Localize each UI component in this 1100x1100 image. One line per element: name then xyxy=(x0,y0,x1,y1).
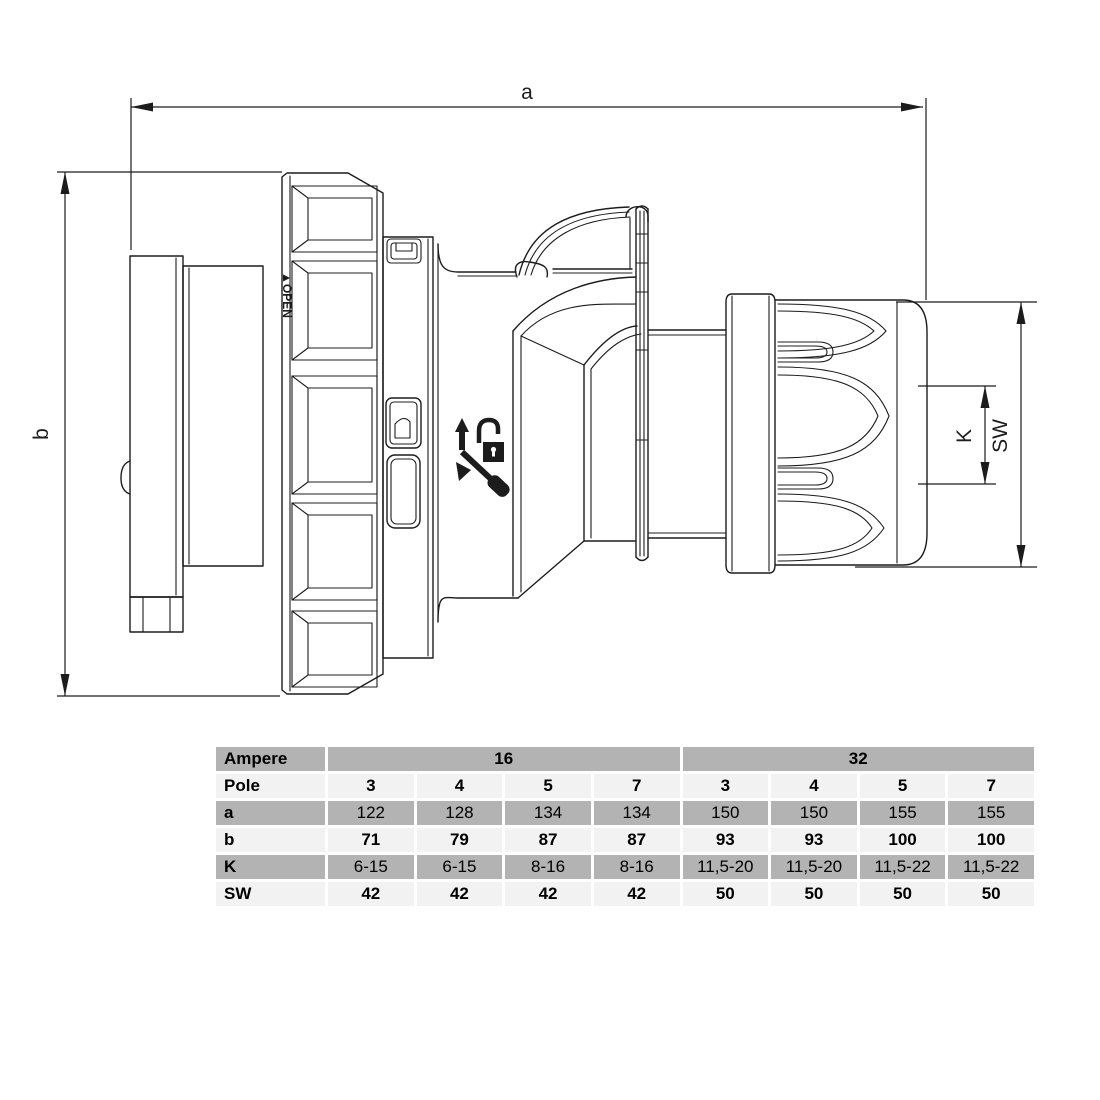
ampere-group-16: 16 xyxy=(328,747,680,771)
table-cell: 155 xyxy=(860,801,946,825)
table-cell: 134 xyxy=(594,801,680,825)
ribbed-grip-ring xyxy=(282,173,383,694)
table-cell: 50 xyxy=(771,882,857,906)
dim-k-label: K xyxy=(953,429,976,443)
table-cell: 4 xyxy=(417,774,503,798)
table-row-a: a 122 128 134 134 150 150 155 155 xyxy=(216,801,1034,825)
dimensions-table: Ampere 16 32 Pole 3 4 5 7 3 4 5 7 a 122 … xyxy=(213,744,1037,909)
table-cell: 50 xyxy=(948,882,1034,906)
contact-sleeves xyxy=(775,300,927,565)
table-cell: 87 xyxy=(505,828,591,852)
table-cell: 93 xyxy=(771,828,857,852)
table-cell: 11,5-22 xyxy=(948,855,1034,879)
table-cell: 150 xyxy=(683,801,769,825)
seal-ring-band xyxy=(636,206,648,561)
table-cell: 50 xyxy=(683,882,769,906)
table-cell: 71 xyxy=(328,828,414,852)
unlock-instruction-icon xyxy=(455,418,512,499)
table-row-pole: Pole 3 4 5 7 3 4 5 7 xyxy=(216,774,1034,798)
table-row-sw: SW 42 42 42 42 50 50 50 50 xyxy=(216,882,1034,906)
dimension-k: K xyxy=(918,386,996,484)
dimension-sw: SW xyxy=(855,302,1037,567)
cover-flap xyxy=(515,207,648,277)
main-body xyxy=(438,244,641,622)
table-cell: 128 xyxy=(417,801,503,825)
table-cell: 6-15 xyxy=(417,855,503,879)
neck-cylinder xyxy=(648,330,726,538)
table-cell: 3 xyxy=(328,774,414,798)
contact-flange xyxy=(726,294,775,573)
table-cell: 5 xyxy=(860,774,946,798)
table-row-ampere: Ampere 16 32 xyxy=(216,747,1034,771)
arrow-diagonal-icon xyxy=(456,462,471,481)
table-cell: 155 xyxy=(948,801,1034,825)
table-cell: 87 xyxy=(594,828,680,852)
table-cell: 50 xyxy=(860,882,946,906)
table-cell: 42 xyxy=(505,882,591,906)
table-cell: 3 xyxy=(683,774,769,798)
table-cell: 11,5-22 xyxy=(860,855,946,879)
latch-section xyxy=(383,237,433,658)
dim-sw-label: SW xyxy=(989,419,1012,453)
row-label-ampere: Ampere xyxy=(216,747,325,771)
cable-entry-cap xyxy=(121,256,263,632)
ampere-group-32: 32 xyxy=(683,747,1035,771)
table-cell: 93 xyxy=(683,828,769,852)
open-padlock-icon xyxy=(479,420,504,462)
technical-drawing: a b SW K xyxy=(0,0,1100,742)
page: a b SW K xyxy=(0,0,1100,1100)
table-cell: 11,5-20 xyxy=(683,855,769,879)
table-cell: 42 xyxy=(594,882,680,906)
row-label-k: K xyxy=(216,855,325,879)
dim-b-label: b xyxy=(30,428,53,440)
table-cell: 42 xyxy=(417,882,503,906)
dim-a-label: a xyxy=(521,81,533,104)
row-label-b: b xyxy=(216,828,325,852)
table-cell: 8-16 xyxy=(594,855,680,879)
table-cell: 11,5-20 xyxy=(771,855,857,879)
table-cell: 100 xyxy=(860,828,946,852)
table-cell: 7 xyxy=(594,774,680,798)
table-cell: 8-16 xyxy=(505,855,591,879)
arrow-up-icon xyxy=(455,418,469,450)
table-cell: 150 xyxy=(771,801,857,825)
table-cell: 5 xyxy=(505,774,591,798)
table-cell: 4 xyxy=(771,774,857,798)
row-label-sw: SW xyxy=(216,882,325,906)
dimension-b: b xyxy=(30,172,282,696)
table-row-k: K 6-15 6-15 8-16 8-16 11,5-20 11,5-20 11… xyxy=(216,855,1034,879)
table-cell: 6-15 xyxy=(328,855,414,879)
table-cell: 122 xyxy=(328,801,414,825)
table-cell: 42 xyxy=(328,882,414,906)
table-cell: 79 xyxy=(417,828,503,852)
row-label-a: a xyxy=(216,801,325,825)
row-label-pole: Pole xyxy=(216,774,325,798)
plug-outline: ▲OPEN xyxy=(121,173,927,694)
table-row-b: b 71 79 87 87 93 93 100 100 xyxy=(216,828,1034,852)
table-cell: 7 xyxy=(948,774,1034,798)
table-cell: 100 xyxy=(948,828,1034,852)
table-cell: 134 xyxy=(505,801,591,825)
dimension-a: a xyxy=(131,81,926,300)
